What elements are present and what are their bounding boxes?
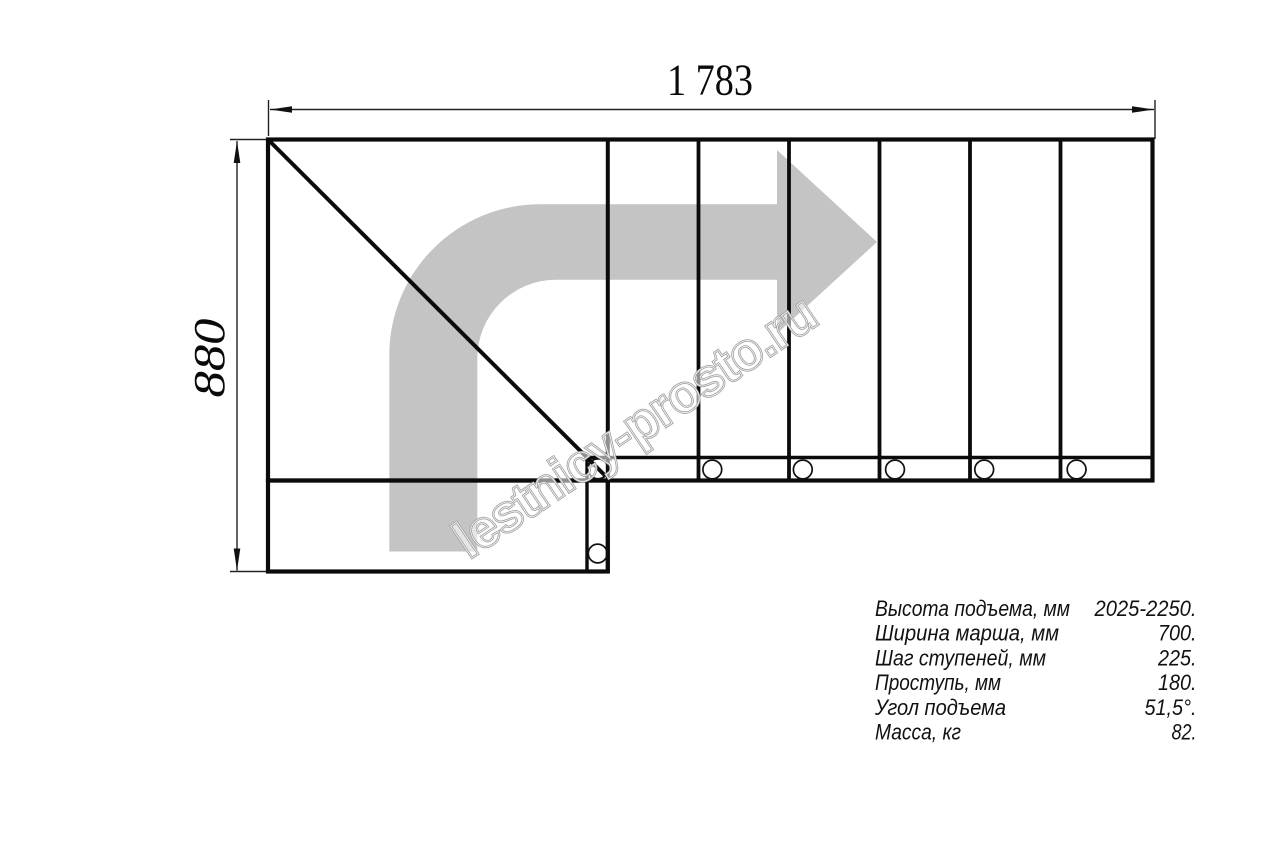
svg-text:82.: 82. [1172, 720, 1197, 745]
svg-text:225.: 225. [1157, 645, 1196, 670]
svg-text:Угол подъема: Угол подъема [874, 695, 1006, 720]
svg-text:Шаг ступеней, мм: Шаг ступеней, мм [875, 645, 1046, 670]
svg-text:51,5°.: 51,5°. [1145, 695, 1197, 720]
svg-text:1 783: 1 783 [667, 56, 753, 105]
svg-text:Проступь, мм: Проступь, мм [875, 670, 1001, 695]
svg-text:Ширина марша, мм: Ширина марша, мм [875, 621, 1059, 646]
svg-text:700.: 700. [1158, 621, 1197, 646]
svg-text:880: 880 [185, 319, 234, 398]
svg-text:Высота подъема, мм: Высота подъема, мм [875, 596, 1070, 621]
svg-text:180.: 180. [1158, 670, 1197, 695]
svg-text:2025-2250.: 2025-2250. [1094, 596, 1197, 621]
svg-text:Масса, кг: Масса, кг [875, 720, 961, 745]
